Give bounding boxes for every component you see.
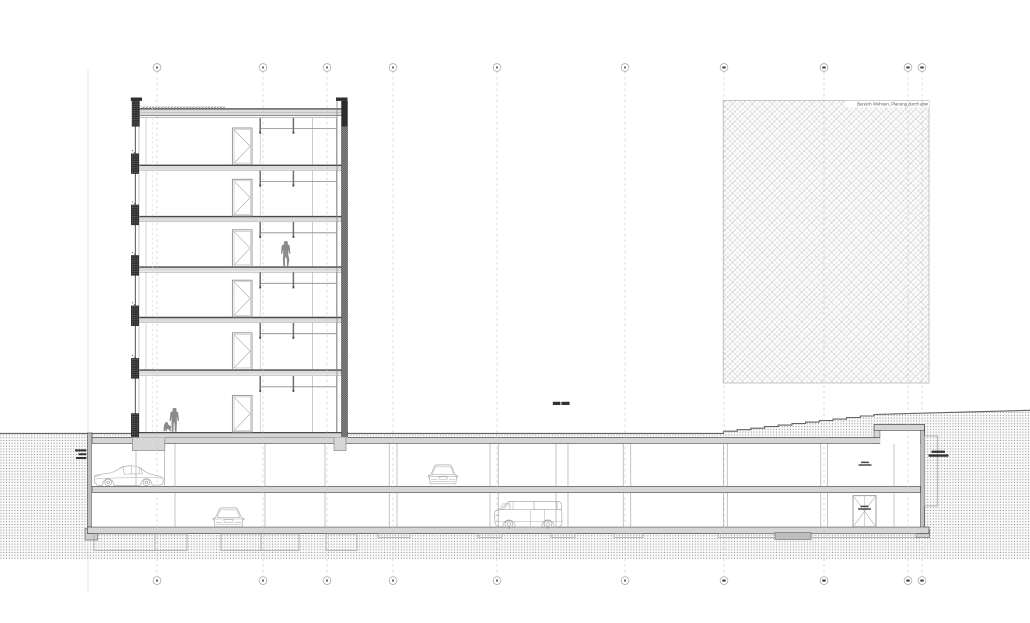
svg-text:Bereich Wohnen, Planung durch: Bereich Wohnen, Planung durch abw [857,102,929,107]
